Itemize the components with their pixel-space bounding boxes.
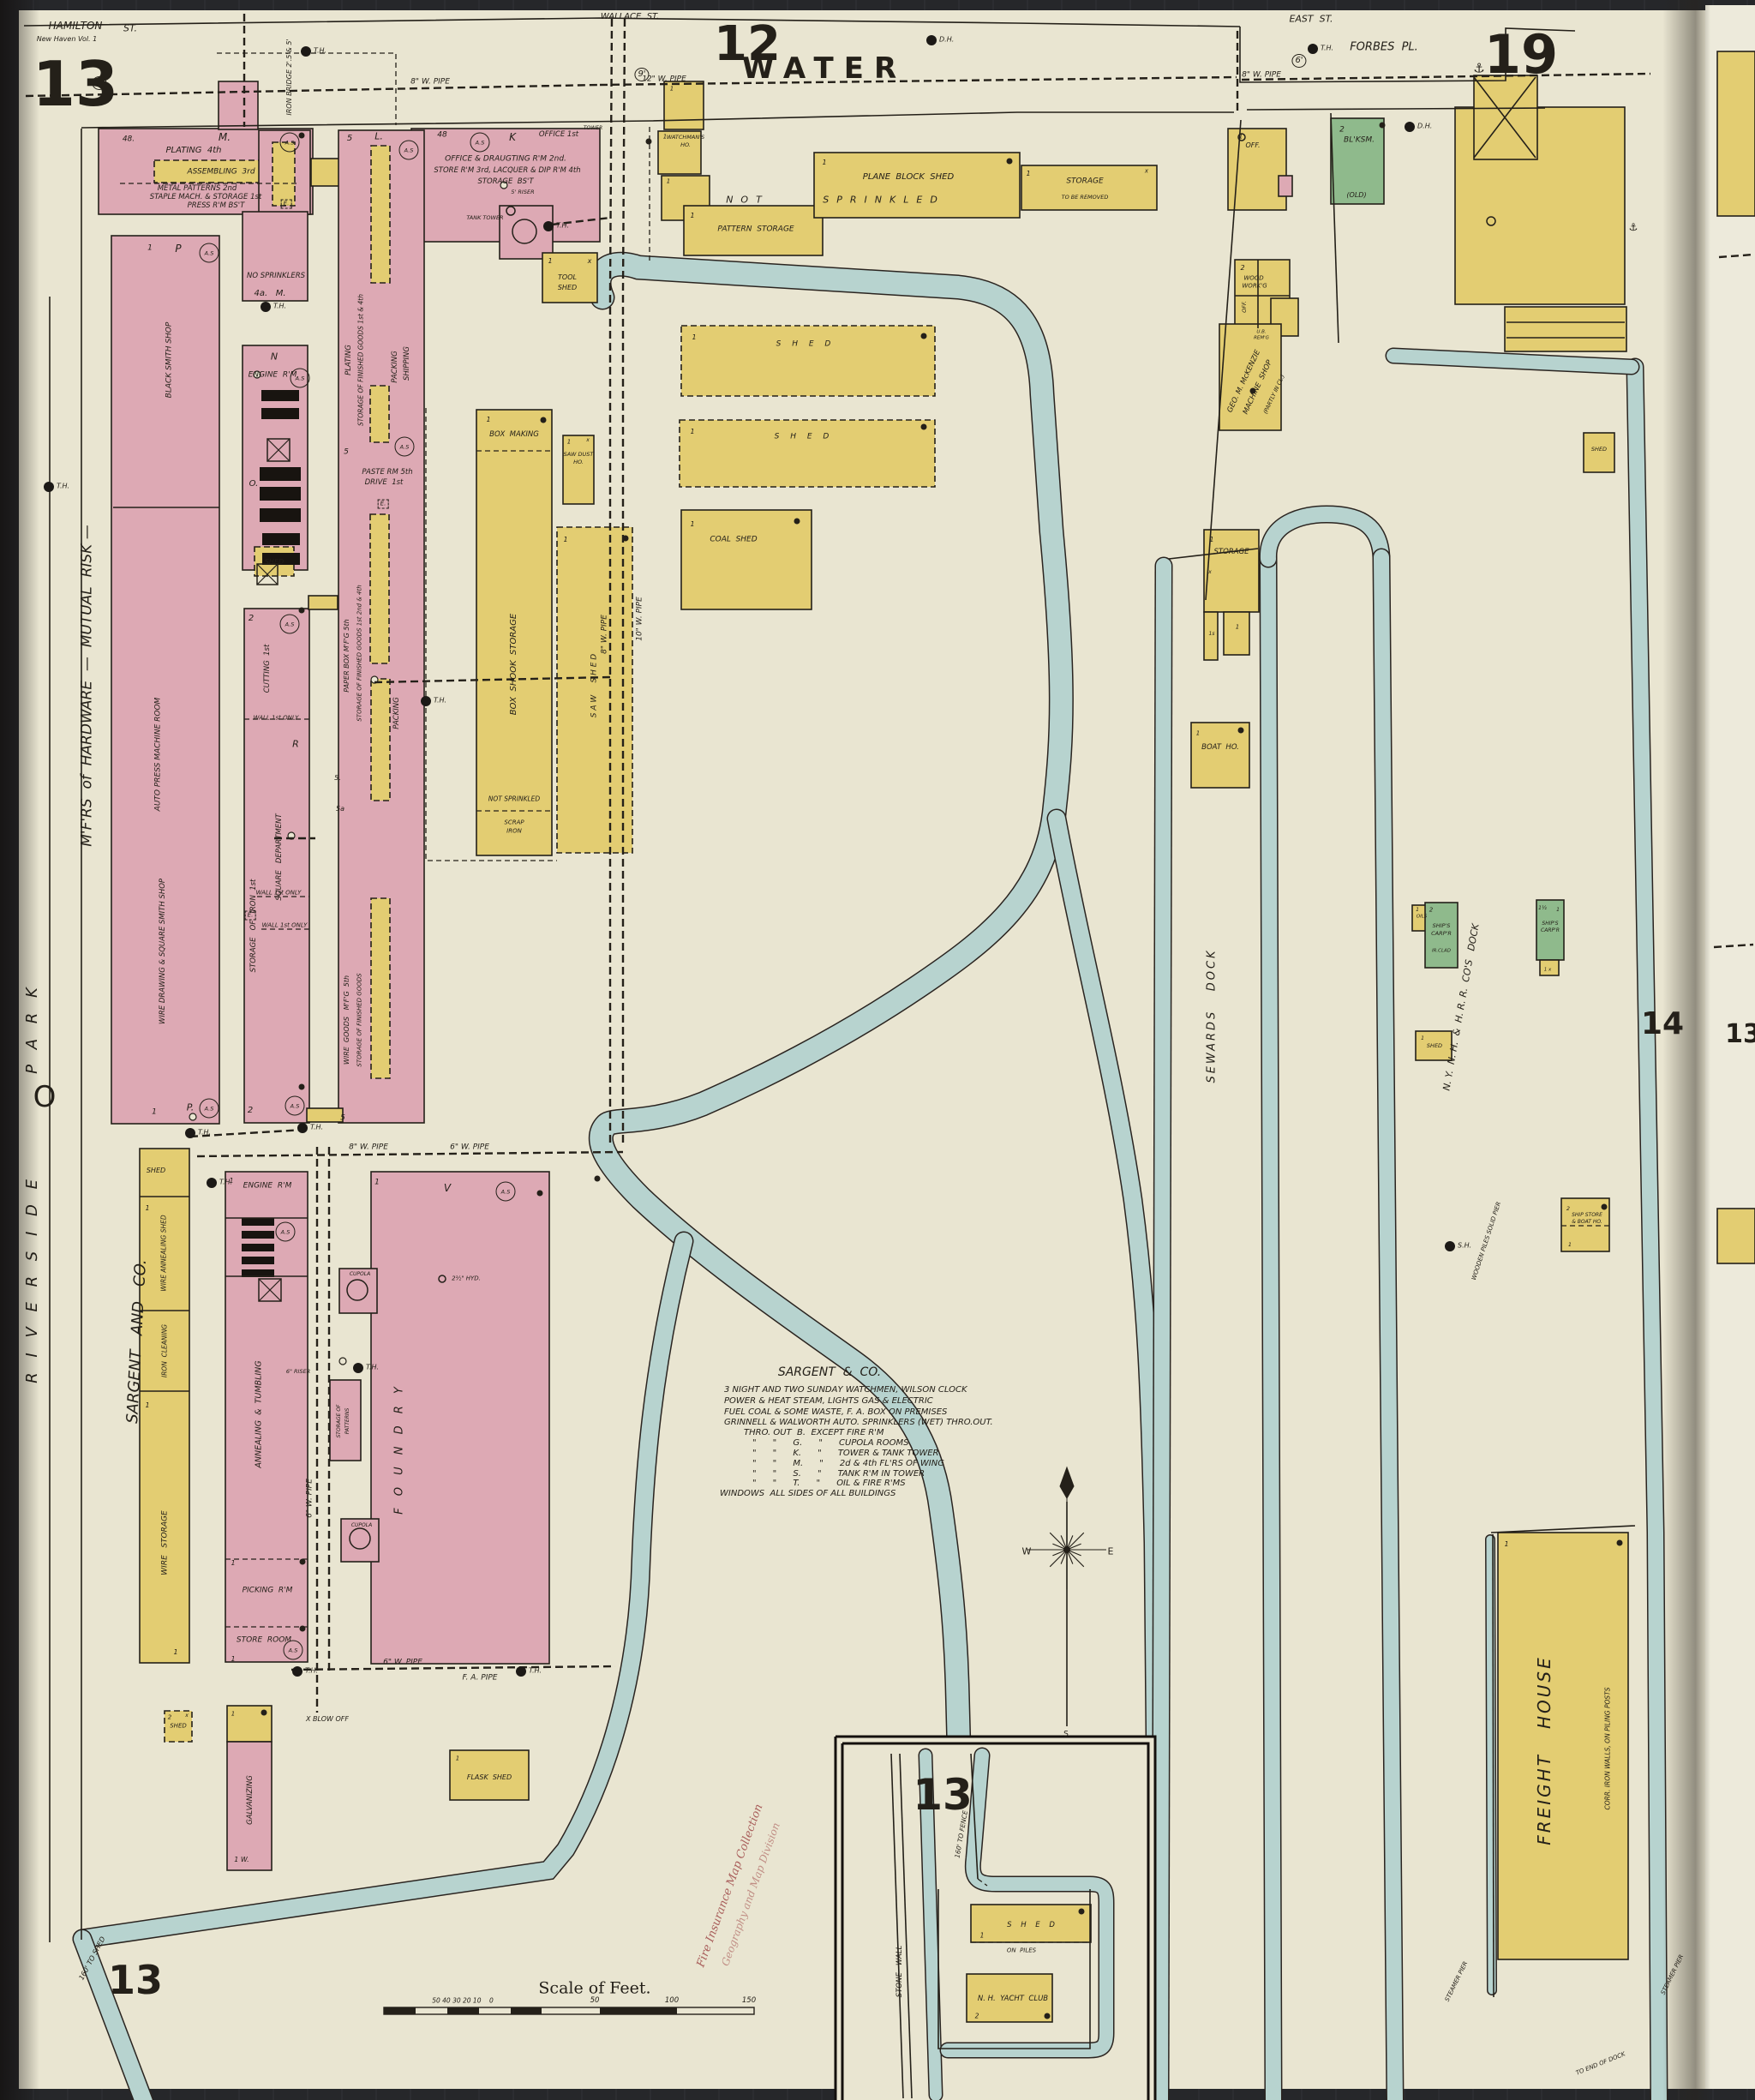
map-label: WORK'G xyxy=(1242,284,1267,290)
map-base-drawing xyxy=(0,0,1755,2100)
building xyxy=(371,898,390,1078)
map-label: AUTO PRESS MACHINE ROOM xyxy=(155,698,163,812)
map-label: WALLACE ST. xyxy=(601,13,659,21)
auto-sprinkler-mark: A.S xyxy=(200,1099,219,1119)
hydrant-dot-label: T.H. xyxy=(310,1124,323,1131)
map-label: IRON xyxy=(506,829,522,835)
map-label: STONE WALL xyxy=(896,1946,904,1997)
map-label: 1 xyxy=(563,537,567,543)
hydrant-dot-label: T.H. xyxy=(556,222,569,230)
map-label: E xyxy=(1108,1547,1114,1557)
map-label: 1 xyxy=(374,1179,380,1187)
map-label: THRO. OUT B. EXCEPT FIRE R'M xyxy=(744,1429,884,1437)
riser-circle xyxy=(189,1113,196,1120)
boiler-bar xyxy=(261,408,299,419)
map-label: EAST ST. xyxy=(1289,15,1333,24)
map-label: 48. xyxy=(123,136,135,144)
map-label: SHED xyxy=(265,559,284,566)
map-label: 1 xyxy=(173,1649,177,1656)
map-label: IR.CLAD xyxy=(1432,949,1451,954)
map-label: 8" W. PIPE xyxy=(1242,72,1281,80)
map-label: S H E D xyxy=(775,434,834,441)
map-label: S H E D xyxy=(1007,1922,1058,1929)
map-label: SCRAP xyxy=(504,820,524,826)
map-label: 5 xyxy=(347,135,352,143)
map-label: CARP'R xyxy=(1431,931,1452,937)
map-label: STORAGE OF FINISHED GOODS xyxy=(357,973,363,1066)
hydrant-dot xyxy=(1445,1241,1455,1251)
corner-dot xyxy=(921,333,927,339)
map-label: 13 xyxy=(108,1960,163,2000)
corner-dot xyxy=(1617,1540,1623,1546)
map-label: STORAGE OF FINISHED GOODS 1st 2nd & 4th xyxy=(357,585,363,721)
map-label: 5 xyxy=(340,1115,345,1123)
map-label: BOAT HO. xyxy=(1201,744,1239,752)
map-label: NOT SPRINKLED xyxy=(488,795,540,802)
building xyxy=(1584,433,1614,472)
map-label: IRON BRIDGE 2'.5'& 5' xyxy=(286,39,293,115)
map-label: P. xyxy=(187,1103,195,1113)
corner-dot xyxy=(1045,2013,1051,2019)
auto-sprinkler-mark: A.S xyxy=(496,1182,516,1202)
map-label: STORAGE OF FINISHED GOODS 1st & 4th xyxy=(357,294,364,426)
map-label: FORBES PL. xyxy=(1350,42,1418,53)
building xyxy=(243,212,308,301)
map-label: WALL 1st ONLY xyxy=(256,891,302,897)
building xyxy=(307,1108,343,1122)
map-label: 2 xyxy=(975,2013,979,2019)
map-label: STORAGE OF xyxy=(337,1405,342,1438)
map-label: 1 xyxy=(1568,1242,1572,1248)
hydrant-dot xyxy=(297,1123,308,1133)
building xyxy=(371,146,390,283)
building xyxy=(681,326,935,396)
map-label: WIRE ANNEALING SHED xyxy=(160,1215,167,1291)
map-label: 1 xyxy=(145,1402,149,1409)
corner-dot xyxy=(1007,159,1013,165)
map-label: FUEL COAL & SOME WASTE, F. A. BOX ON PRE… xyxy=(724,1408,947,1417)
hydrant-dot xyxy=(301,46,311,57)
map-label: OILS xyxy=(1417,915,1428,920)
hydrant-dot xyxy=(44,482,54,492)
corner-dot xyxy=(646,139,652,145)
scale-bar-segment xyxy=(447,2007,479,2014)
map-label: New Haven Vol. 1 xyxy=(37,36,97,43)
map-label: 2 xyxy=(168,1715,171,1721)
map-label: FLASK SHED xyxy=(467,1774,512,1781)
map-label: HO. xyxy=(680,142,691,148)
map-label: E. xyxy=(378,500,389,509)
map-label: 2½" HYD. xyxy=(452,1276,481,1282)
boiler-bar xyxy=(260,487,301,501)
map-label: WALL 1st ONLY xyxy=(254,716,299,722)
map-label: 50 40 30 20 10 0 xyxy=(432,1997,494,2004)
boiler-bar xyxy=(242,1244,274,1251)
map-label: 1½ xyxy=(1538,906,1547,911)
auto-sprinkler-mark: A.S xyxy=(280,133,300,153)
water-channel xyxy=(1490,1539,1492,1990)
corner-dot xyxy=(541,417,547,423)
map-label: 19 xyxy=(1484,28,1558,81)
map-label: 1 xyxy=(690,213,694,219)
map-label: CORR. IRON WALLS, ON PILING POSTS xyxy=(1604,1687,1611,1809)
map-label: COAL SHED xyxy=(710,537,757,544)
map-label: 6' xyxy=(1291,54,1306,68)
map-label: WALL 1st ONLY xyxy=(262,923,308,929)
hydrant-dot-label: T.H. xyxy=(434,697,446,705)
boundary-line xyxy=(1493,1534,1494,1997)
map-label: WATER xyxy=(742,54,907,83)
map-label: x xyxy=(1145,169,1148,175)
map-label: L. xyxy=(374,132,383,141)
map-label: WINDOWS ALL SIDES OF ALL BUILDINGS xyxy=(720,1490,895,1498)
map-label: PICKING R'M xyxy=(243,1587,293,1595)
corner-dot xyxy=(921,424,927,430)
map-label: PACKING xyxy=(393,697,401,729)
building xyxy=(371,679,390,801)
riser-circle xyxy=(339,1358,346,1365)
map-label: 6" W. PIPE xyxy=(450,1144,489,1152)
map-label: SHED xyxy=(1427,1043,1442,1049)
map-label: 4a. M. xyxy=(254,290,285,298)
hydrant-dot-label: T.H. xyxy=(273,303,286,310)
hydrant-dot-label: S.H. xyxy=(1458,1242,1471,1250)
map-label: 100 xyxy=(665,1997,679,2005)
map-label: OFFICE & DRAUGTING R'M 2nd. xyxy=(445,156,566,164)
map-label: PLATING xyxy=(345,345,353,375)
map-label: 1 xyxy=(1196,731,1200,737)
map-label: ASSEMBLING 3rd xyxy=(187,169,255,177)
map-label: NO SPRINKLERS xyxy=(247,273,305,280)
map-label: 1 xyxy=(1026,171,1030,177)
map-label: & BOAT HO. xyxy=(1572,1220,1602,1225)
map-label: 1s xyxy=(1209,632,1215,637)
map-label: 5a xyxy=(336,806,344,813)
map-label: 1 xyxy=(1421,1036,1424,1041)
auto-sprinkler-mark: A.S xyxy=(276,1222,296,1242)
map-label: 1 xyxy=(1504,1541,1508,1548)
map-label: SQUARE DEPARTMENT xyxy=(276,813,284,900)
corner-dot xyxy=(794,519,800,525)
map-label: SARGENT & CO. xyxy=(778,1366,881,1378)
auto-sprinkler-mark: A.S xyxy=(470,133,490,153)
map-label: PATTERN STORAGE xyxy=(717,226,794,234)
map-label: 1 xyxy=(690,429,694,435)
map-label: SHIPPING xyxy=(404,346,411,381)
map-label: PLATING 4th xyxy=(166,147,222,155)
map-label: W xyxy=(1022,1547,1032,1557)
map-label: SAW DUST xyxy=(564,452,594,458)
map-label: 10" W. PIPE xyxy=(637,597,644,641)
map-label: POWER & HEAT STEAM, LIGHTS GAS & ELECTRI… xyxy=(724,1397,933,1406)
map-label: " " T. " OIL & FIRE R'MS xyxy=(752,1479,906,1488)
map-label: x xyxy=(1208,570,1212,575)
map-label: 1 xyxy=(690,521,694,528)
map-label: SHIP'S xyxy=(1433,923,1451,929)
map-label: 8" W. PIPE xyxy=(602,615,609,654)
map-label: x xyxy=(185,1713,189,1719)
hydrant-dot xyxy=(353,1363,363,1373)
map-label: 7' xyxy=(92,76,106,90)
map-label: PAPER BOX M'F'G 5th xyxy=(344,619,350,692)
building xyxy=(370,386,389,442)
corner-dot xyxy=(1079,1909,1085,1915)
hydrant-dot xyxy=(516,1666,526,1677)
map-label: 50 xyxy=(590,1997,600,2005)
map-label: BL'KSM. xyxy=(1344,137,1375,145)
map-label: STORE ROOM xyxy=(237,1637,291,1645)
map-label: STORAGE xyxy=(1066,178,1103,186)
map-label: PASTE RM 5th xyxy=(362,469,412,477)
map-label: 1 xyxy=(145,1205,149,1212)
map-label: P xyxy=(175,243,181,254)
map-label: SHED xyxy=(1591,447,1607,453)
map-label: 2 xyxy=(1566,1206,1570,1212)
map-label: 1 xyxy=(1236,625,1239,631)
map-label: K xyxy=(509,132,516,142)
hydrant-dot-label: T.H. xyxy=(219,1179,232,1186)
hydrant-dot-label: D.H. xyxy=(1417,123,1432,130)
map-label: E. xyxy=(281,200,292,209)
hydrant-dot xyxy=(926,35,937,45)
boiler-bar xyxy=(260,508,301,522)
map-label: OFF. xyxy=(1245,142,1260,149)
water-channel xyxy=(1268,557,1273,2100)
map-label: 1 xyxy=(456,1756,459,1762)
hydrant-dot-label: D.H. xyxy=(939,36,954,44)
map-label: 1 xyxy=(1416,908,1419,913)
hydrant-dot-label: T.H. xyxy=(305,1667,318,1675)
map-label: M'F'RS of HARDWARE — MUTUAL RISK — xyxy=(81,525,95,847)
auto-sprinkler-mark: A.S xyxy=(285,1096,305,1116)
map-label: GALVANIZING xyxy=(247,1775,255,1825)
building xyxy=(1279,176,1292,196)
building xyxy=(1224,612,1249,655)
map-label: 5. xyxy=(334,775,341,782)
map-label: WIRE STORAGE xyxy=(162,1510,170,1575)
map-label: SHED xyxy=(558,285,577,291)
hydrant-dot xyxy=(1308,44,1318,54)
map-label: 2 xyxy=(1240,265,1244,272)
hydrant-dot xyxy=(421,696,431,706)
map-label: 3 NIGHT AND TWO SUNDAY WATCHMEN, WILSON … xyxy=(724,1386,967,1395)
map-label: 5 xyxy=(344,449,349,457)
map-label: TANK TOWER xyxy=(466,215,503,221)
map-label: SHED xyxy=(170,1724,187,1730)
map-label: E. xyxy=(245,911,256,921)
map-label: 14 xyxy=(1641,1009,1684,1040)
map-label: 1 xyxy=(667,179,670,185)
hydrant-dot-label: T.H. xyxy=(366,1364,379,1371)
map-label: 1 xyxy=(567,440,571,446)
map-label: 6" RISER xyxy=(286,1369,310,1375)
map-label: SHIP'S xyxy=(1542,921,1558,927)
map-label: WIRE GOODS M'F'G 5th xyxy=(344,975,350,1065)
corner-dot xyxy=(1238,728,1244,734)
map-label: WIRE DRAWING & SQUARE SMITH SHOP xyxy=(159,879,167,1024)
water-channel xyxy=(1160,566,1164,2100)
map-label: " " M. " 2d & 4th FL'RS OF WING xyxy=(752,1460,944,1468)
hydrant-dot-label: T.H. xyxy=(57,483,69,490)
map-label: STAPLE MACH. & STORAGE 1st xyxy=(150,194,262,201)
building xyxy=(563,435,594,504)
auto-sprinkler-mark: A.S xyxy=(284,1641,303,1660)
hydrant-dot xyxy=(261,302,271,312)
map-label: STORAGE xyxy=(1214,549,1249,556)
map-label: X BLOW OFF xyxy=(306,1716,349,1723)
auto-sprinkler-mark: A.S xyxy=(280,615,300,634)
boiler-bar xyxy=(242,1231,274,1239)
map-label: ST. xyxy=(123,24,137,33)
corner-dot xyxy=(299,133,305,139)
map-label: IRON CLEANING xyxy=(161,1324,168,1377)
map-label: TO BE REMOVED xyxy=(1062,195,1109,201)
auto-sprinkler-mark: A.S xyxy=(200,243,219,263)
building xyxy=(308,596,338,609)
map-label: 12" W. PIPE xyxy=(642,76,686,84)
map-label: x xyxy=(588,258,592,265)
sanborn-map-sheet: HAMILTONST.New Haven Vol. 1137'12WATERWA… xyxy=(0,0,1755,2100)
map-label: BOX SHOOK STORAGE xyxy=(510,614,518,715)
map-label: 1 xyxy=(692,334,696,341)
scale-bar-segment xyxy=(384,2007,416,2014)
map-label: 1 xyxy=(670,87,674,93)
map-label: 5' RISER xyxy=(511,189,534,195)
map-label: PRESS R'M BS'T xyxy=(188,202,245,210)
map-label: 1 xyxy=(1209,537,1213,543)
map-label: 1 xyxy=(147,245,153,253)
map-label: S H E D xyxy=(776,341,836,349)
map-label: 1 W. xyxy=(234,1857,249,1863)
map-label: 1 xyxy=(663,135,667,141)
map-label: NOT SPRINKLED xyxy=(726,195,945,205)
map-label: 2 xyxy=(1339,127,1345,135)
scale-bar-segment xyxy=(511,2007,542,2014)
map-label: BLACK SMITH SHOP xyxy=(166,322,174,399)
hydrant-dot xyxy=(185,1128,195,1138)
map-label: 1 xyxy=(231,1656,235,1663)
map-label: Scale of Feet. xyxy=(538,1981,650,1997)
map-label: O. xyxy=(249,480,259,489)
hydrant-dot-label: T.H. xyxy=(314,47,326,55)
map-label: METAL PATTERNS 2nd xyxy=(158,185,237,193)
building xyxy=(681,510,812,609)
hydrant-dot-label: T.H. xyxy=(1321,45,1333,52)
map-label: 1 xyxy=(548,258,552,265)
map-label: PACKING xyxy=(392,351,399,382)
hydrant-dot xyxy=(1405,122,1415,132)
map-label: WOOD xyxy=(1243,276,1263,282)
map-label: TOOL xyxy=(558,274,577,281)
map-label: TOWER xyxy=(584,126,602,131)
corner-dot xyxy=(299,1084,305,1090)
map-label: 1 xyxy=(1239,135,1243,141)
building xyxy=(1021,165,1157,210)
map-label: 1 xyxy=(822,159,826,166)
map-label: 1 xyxy=(1556,908,1560,913)
map-label: CUPOLA xyxy=(350,1272,370,1277)
map-label: HAMILTON xyxy=(49,21,103,31)
building xyxy=(1717,1209,1755,1263)
map-label: OFF. xyxy=(1242,301,1248,313)
map-label: FREIGHT HOUSE xyxy=(1536,1655,1553,1845)
corner-dot xyxy=(261,1710,267,1716)
hydrant-dot-label: T.H. xyxy=(529,1667,542,1675)
corner-dot xyxy=(299,608,305,614)
map-label: 2 xyxy=(1429,908,1433,914)
map-label: S A W S H E D xyxy=(591,654,599,717)
map-label: 1 x xyxy=(1544,968,1552,973)
hydrant-dot xyxy=(207,1178,217,1188)
map-label: 48 xyxy=(437,132,446,140)
map-label: U.B. xyxy=(1256,330,1266,335)
map-label: S xyxy=(1063,1731,1069,1739)
map-label: ⚓ xyxy=(1629,222,1638,232)
map-label: 2 xyxy=(248,1107,253,1115)
building xyxy=(1505,307,1626,351)
building xyxy=(814,153,1020,218)
map-label: " " G. " CUPOLA ROOMS xyxy=(752,1439,908,1448)
map-label: 6" W. PIPE xyxy=(383,1659,422,1667)
boiler-bar xyxy=(242,1218,274,1226)
map-label: ON PILES xyxy=(1007,1948,1036,1954)
map-label: BOX MAKING xyxy=(489,431,539,439)
map-label: DRIVE 1st xyxy=(365,479,404,487)
corner-dot xyxy=(537,1191,543,1197)
map-label: PATTERNS xyxy=(345,1408,350,1435)
map-label: CUTTING 1st xyxy=(264,645,272,693)
map-label: CARP'R xyxy=(1541,928,1560,933)
corner-dot xyxy=(595,1176,601,1182)
corner-dot xyxy=(1380,123,1386,129)
map-label: F. A. PIPE xyxy=(463,1675,498,1683)
auto-sprinkler-mark: A.S xyxy=(399,141,419,160)
map-label: " " K. " TOWER & TANK TOWER xyxy=(752,1449,939,1458)
boiler-bar xyxy=(261,390,299,401)
map-label: 8" W. PIPE xyxy=(349,1144,388,1152)
hydrant-dot xyxy=(292,1666,302,1677)
map-label: SHED xyxy=(147,1167,165,1174)
boiler-bar xyxy=(262,533,300,545)
map-label: CUPOLA xyxy=(351,1523,372,1528)
map-label: " " S. " TANK R'M IN TOWER xyxy=(752,1470,925,1479)
map-label: 1 xyxy=(231,1560,235,1567)
map-label: STORE R'M 3rd, LACQUER & DIP R'M 4th xyxy=(434,167,580,175)
building xyxy=(219,81,258,129)
map-label: SEWARDS DOCK xyxy=(1207,948,1218,1083)
map-label: PLANE BLOCK SHED xyxy=(863,173,954,182)
map-label: 8" W. PIPE xyxy=(410,79,450,87)
map-label: x xyxy=(586,438,590,443)
map-label: ⚓ xyxy=(1473,63,1484,75)
compass-center xyxy=(1063,1546,1070,1553)
map-label: V xyxy=(444,1183,451,1193)
map-label: REM'G xyxy=(1254,336,1269,341)
map-label: N. H. YACHT CLUB xyxy=(978,1995,1048,2003)
map-label: SHIP STORE xyxy=(1572,1213,1602,1218)
scale-bar-segment xyxy=(600,2007,677,2014)
map-label: 1 xyxy=(152,1109,157,1117)
map-label: OFFICE 1st xyxy=(539,131,578,139)
map-label: R I V E R S I D E P A R K xyxy=(25,982,40,1383)
map-label: M. xyxy=(219,132,231,142)
boiler-bar xyxy=(260,467,301,481)
map-label: STORAGE BS'T xyxy=(477,178,533,186)
hydrant-dot xyxy=(543,221,554,231)
map-label: HO. xyxy=(573,459,584,465)
map-label: R xyxy=(292,740,299,749)
hydrant-dot-label: T.H. xyxy=(198,1129,211,1137)
